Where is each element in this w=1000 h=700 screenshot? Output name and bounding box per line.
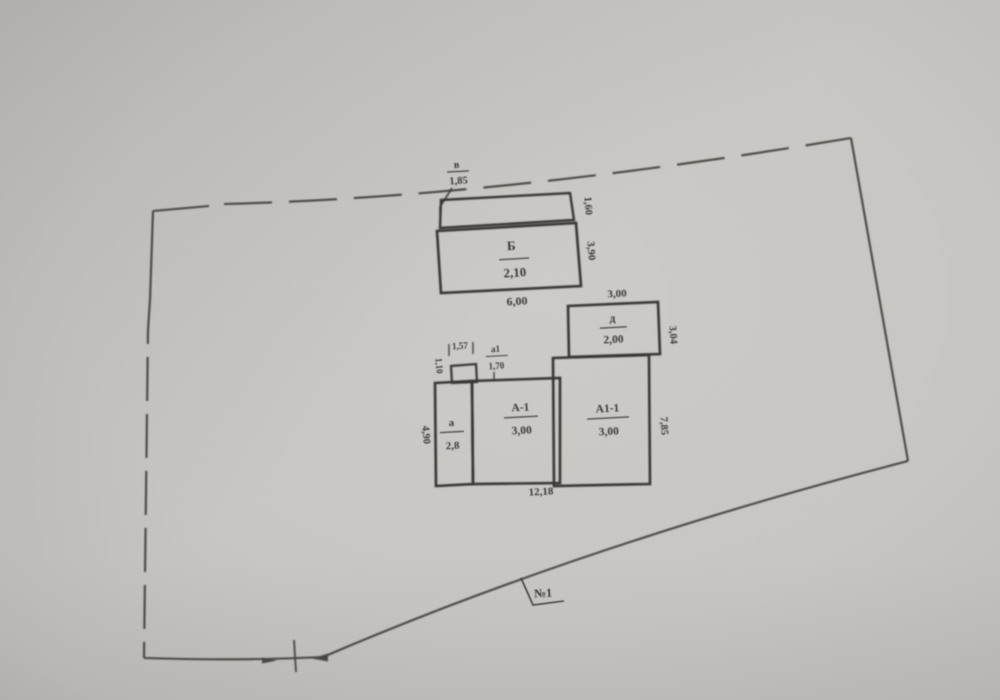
svg-text:1,70: 1,70: [488, 361, 505, 372]
svg-text:12,18: 12,18: [528, 485, 554, 498]
svg-text:1,85: 1,85: [449, 175, 468, 187]
svg-text:А-1: А-1: [511, 402, 530, 415]
svg-text:1,60: 1,60: [581, 196, 593, 215]
svg-text:3,00: 3,00: [511, 424, 532, 437]
svg-text:3,00: 3,00: [607, 287, 627, 300]
svg-text:3,90: 3,90: [584, 241, 597, 262]
svg-text:д: д: [609, 313, 616, 325]
svg-text:Б: Б: [507, 238, 516, 253]
svg-text:2,00: 2,00: [603, 333, 624, 346]
svg-text:№1: №1: [534, 586, 553, 601]
svg-text:а1: а1: [491, 344, 501, 354]
svg-text:1,10: 1,10: [433, 358, 444, 375]
svg-text:2,8: 2,8: [445, 440, 460, 453]
svg-text:в: в: [454, 160, 461, 171]
svg-text:2,10: 2,10: [503, 264, 527, 280]
svg-text:4,90: 4,90: [419, 425, 431, 444]
svg-text:1,57: 1,57: [452, 341, 469, 352]
svg-text:3,00: 3,00: [598, 425, 619, 438]
svg-text:7,85: 7,85: [658, 416, 670, 435]
svg-text:3,04: 3,04: [666, 325, 678, 345]
svg-text:А1-1: А1-1: [595, 402, 619, 415]
svg-text:6,00: 6,00: [506, 293, 528, 308]
